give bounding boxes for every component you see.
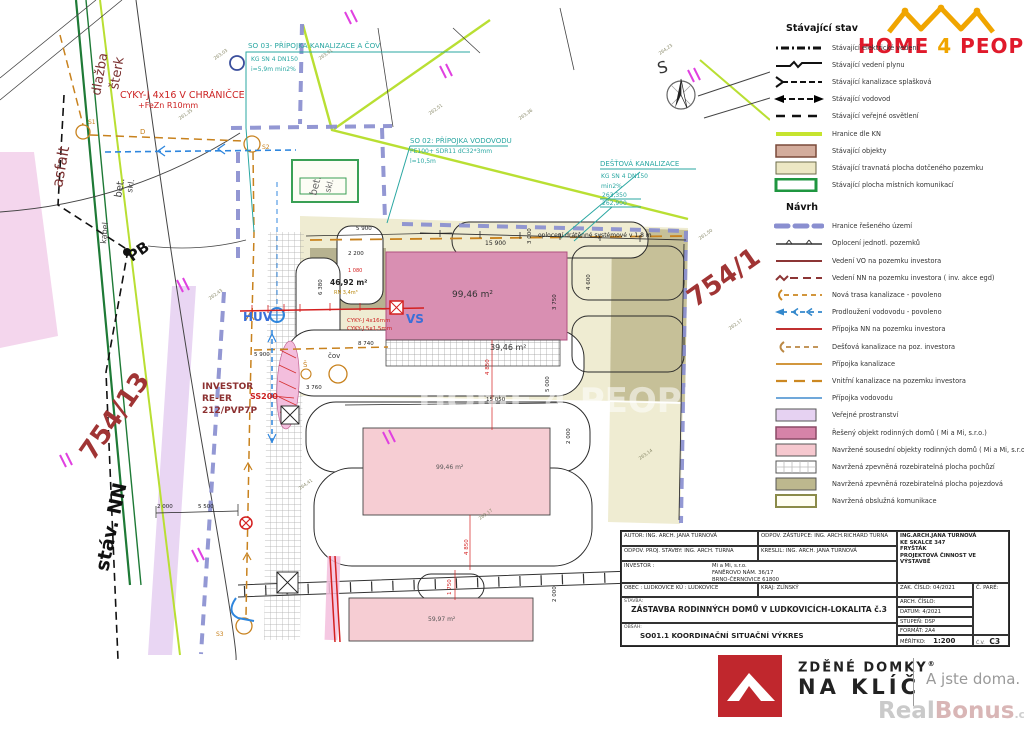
- area-small-label: 59,97 m²: [428, 616, 456, 623]
- tb-investor: INVESTOR : Mi a Mi, s.r.o. FANĚROVO NÁM.…: [621, 561, 897, 583]
- dim-5000: 5 000: [545, 376, 551, 392]
- pb-label: PB: [124, 238, 153, 266]
- legend-symbol-line-water: [774, 92, 824, 106]
- spot-elevation: 263,03: [213, 48, 229, 62]
- legend-item: Přípojka NN na pozemku investora: [770, 321, 1022, 338]
- legend-item-label: Stávající objekty: [832, 147, 886, 155]
- legend-proposal-list: Hranice řešeného územíOplocení jednotl. …: [770, 218, 1022, 510]
- dlazba-label: dlažba: [89, 52, 111, 97]
- dim-5500: 5 500: [198, 504, 214, 510]
- legend-symbol-line-water-conn: [774, 391, 824, 405]
- so03-line2: i=5,9m min2%: [251, 66, 296, 73]
- legend-item-label: Navržené sousední objekty rodinných domů…: [832, 446, 1024, 454]
- dim-1750: 1 750: [447, 579, 453, 595]
- dim-2000: 2 000: [157, 504, 173, 510]
- asfalt-label: asfalt: [48, 145, 73, 189]
- watermark-tld: .cz: [1015, 708, 1024, 721]
- footer-logo: ZDĚNÉ DOMKY® NA KLÍČ A jste doma. RealBo…: [710, 650, 1024, 729]
- legend-item-label: Řešený objekt rodinných domů ( Mi a Mi, …: [832, 429, 987, 437]
- legend-item-label: Hranice řešeného území: [832, 222, 912, 230]
- tb-kreslil: KRESLIL: ING. ARCH. JANA TURNOVÁ: [758, 546, 897, 561]
- tb-kraj: KRAJ: ZLÍNSKÝ: [758, 583, 897, 597]
- legend-item-label: Stávající vedení plynu: [832, 61, 905, 69]
- legend-proposal-title: Návrh: [786, 202, 1022, 213]
- tb-investor-addr1: FANĚROVO NÁM. 36/17: [712, 570, 773, 577]
- vs-label: VS: [406, 312, 424, 326]
- cyky-label-1: CYKY-J 4x16 V CHRÁNIČCE: [120, 89, 245, 101]
- sachta-label: Š: [303, 360, 308, 369]
- watermark-real: Real: [878, 698, 935, 724]
- legend-item-label: Prodloužení vodovodu - povoleno: [832, 308, 942, 316]
- area-neighbor-label: 99,46 m²: [436, 464, 464, 471]
- legend-item: Navržená obslužná komunikace: [770, 493, 1022, 510]
- legend-item: Oplocení jednotl. pozemků: [770, 235, 1022, 252]
- legend-item: Stávající travnatá plocha dotčeného poze…: [770, 159, 1022, 176]
- realbonus-watermark: RealBonus.cz: [878, 698, 1024, 724]
- legend-item-label: Stávající vodovod: [832, 95, 890, 103]
- investor-label-3: 212/PVP7P: [202, 406, 257, 416]
- rain-line1: KG SN 4 DN150: [601, 173, 648, 180]
- title-block: AUTOR: ING. ARCH. JANA TURNOVÁ ODPOV. ZÁ…: [620, 530, 1010, 647]
- so03-line1: KG SN 4 DN150: [251, 56, 298, 63]
- legend-symbol-swatch-neighbor-building: [774, 443, 824, 457]
- d-marker-label: D: [140, 128, 145, 136]
- legend-item-label: Vnitřní kanalizace na pozemku investora: [832, 377, 966, 385]
- legend-symbol-line-rain: [774, 340, 824, 354]
- dim-8740: 8 740: [358, 341, 374, 347]
- legend-item: Vedení NN na pozemku investora ( inv. ak…: [770, 269, 1022, 286]
- legend-item: Stávající veřejné osvětlení: [770, 108, 1022, 125]
- footer-wordmark: ZDĚNÉ DOMKY® NA KLÍČ: [798, 660, 937, 699]
- dim-15900: 15 900: [485, 240, 506, 247]
- legend-symbol-line-fence: [774, 236, 824, 250]
- legend-symbol-line-new-sewer: [774, 288, 824, 302]
- tb-cv-value: C3: [989, 637, 1000, 646]
- spot-elevation: 264,23: [658, 43, 674, 57]
- legend-item: Řešený objekt rodinných domů ( Mi a Mi, …: [770, 424, 1022, 441]
- legend-item: Stávající vodovod: [770, 91, 1022, 108]
- dim-14200: 14 200: [0, 0, 20, 2]
- legend-item-label: Navržená zpevněná rozebiratelná plocha p…: [832, 480, 1003, 488]
- legend-item: Stávající kanalizace splašková: [770, 73, 1022, 90]
- public-space-band: [148, 286, 196, 655]
- s3-label: S3: [216, 631, 224, 638]
- legend-symbol-swatch-drive: [774, 477, 824, 491]
- legend-item: Nová trasa kanalizace - povoleno: [770, 286, 1022, 303]
- legend-symbol-swatch-walk: [774, 460, 824, 474]
- legend-item: Přípojka vodovodu: [770, 390, 1022, 407]
- sewer-node-circle: [230, 56, 244, 70]
- skl-label: skl.: [125, 178, 136, 193]
- watermark-bonus: Bonus: [935, 698, 1015, 724]
- legend-symbol-swatch-grass: [774, 161, 824, 175]
- registered-mark: ®: [928, 660, 937, 668]
- rain-elev2: 262,900: [602, 200, 627, 207]
- legend-item: Hranice dle KN: [770, 125, 1022, 142]
- tb-cv: Č.V. C3: [973, 635, 1009, 646]
- legend-item: Hranice řešeného území: [770, 218, 1022, 235]
- rn-label: RN 3,4m³: [334, 290, 358, 296]
- legend-symbol-swatch-service-road: [774, 494, 824, 508]
- legend-item-label: Stávající kanalizace splašková: [832, 78, 931, 86]
- so02-title: SO 02: PŘÍPOJKA VODOVODU: [410, 136, 512, 145]
- legend-item-label: Vedení NN na pozemku investora ( inv. ak…: [832, 274, 995, 282]
- legend-item-label: Nová trasa kanalizace - povoleno: [832, 291, 942, 299]
- spot-elevation: 261,50: [698, 228, 714, 242]
- tb-stavba-title: ZÁSTAVBA RODINNÝCH DOMŮ V LUDKOVICÍCH-LO…: [624, 605, 894, 614]
- tb-obsah: OBSAH: SO01.1 KOORDINAČNÍ SITUAČNÍ VÝKRE…: [621, 623, 897, 646]
- tb-odpov-zastupce: ODPOV. ZÁSTUPCE: ING. ARCH.RICHARD TURNA: [758, 531, 897, 546]
- footer-tagline: A jste doma.: [926, 670, 1020, 688]
- legend-symbol-line-vo: [774, 254, 824, 268]
- legend-symbol-swatch-main-building: [774, 426, 824, 440]
- dim-2200: 2 200: [348, 251, 364, 257]
- tb-datum: DATUM: 4/2021: [897, 607, 973, 617]
- tb-arch-cislo: ARCH. ČÍSLO:: [897, 597, 973, 607]
- legend-item-label: Oplocení jednotl. pozemků: [832, 239, 920, 247]
- legend-item: Stávající elektrické vedení: [770, 39, 1022, 56]
- legend-symbol-line-gas: [774, 58, 824, 72]
- ss200-label: SS200: [250, 392, 278, 401]
- parcel-label-754-13: 754/13: [74, 367, 156, 466]
- so02-line2: l=10,5m: [410, 158, 436, 165]
- legend-symbol-swatch-roads: [774, 178, 824, 192]
- dim-3750: 3 750: [552, 294, 558, 310]
- paved-terrace: [386, 340, 560, 366]
- legend-item-label: Stávající elektrické vedení: [832, 44, 918, 52]
- legend-symbol-swatch-existing-building: [774, 144, 824, 158]
- investor-label-2: RE-ER: [202, 394, 232, 404]
- tb-firm1: ING.ARCH.JANA TURNOVÁ: [900, 533, 1006, 540]
- tb-pare: Č. PARÉ:: [973, 583, 1009, 635]
- dim-15050: 15 050: [486, 397, 506, 403]
- tb-investor-name: Mi a Mi, s.r.o.: [712, 563, 747, 570]
- legend-item: Navržené sousední objekty rodinných domů…: [770, 441, 1022, 458]
- tb-cv-label: Č.V.: [976, 641, 985, 646]
- s2-label: S2: [262, 144, 270, 151]
- legend-item: Prodloužení vodovodu - povoleno: [770, 304, 1022, 321]
- legend-item: Stávající plocha místních komunikací: [770, 177, 1022, 194]
- tb-meritko-value: 1:200: [933, 637, 955, 645]
- legend-item-label: Přípojka NN na pozemku investora: [832, 325, 945, 333]
- roof-logo-icon: [718, 655, 782, 717]
- dim-2000b: 2 000: [566, 428, 572, 444]
- legend-item-label: Přípojka vodovodu: [832, 394, 893, 402]
- dim-5900: 5 900: [356, 226, 372, 232]
- tb-firm3: FRYŠTÁK: [900, 546, 1006, 553]
- dim-4600: 4 600: [586, 274, 592, 290]
- spot-elevation: 262,51: [428, 103, 444, 117]
- dim-3000: 3 000: [527, 228, 533, 244]
- area-paved-label: 39,46 m²: [490, 343, 526, 352]
- tb-format: FORMÁT: 2A4: [897, 626, 973, 635]
- dim-1080: 1 080: [348, 268, 362, 274]
- legend-symbol-line-nn-conn: [774, 322, 824, 336]
- kabel-label: kabel: [99, 222, 110, 244]
- legend-item: Veřejné prostranství: [770, 407, 1022, 424]
- dim-2000c: 2 000: [552, 586, 558, 602]
- spot-elevation: 262,17: [728, 318, 744, 332]
- legend-existing-list: Stávající elektrické vedeníStávající ved…: [770, 39, 1022, 194]
- legend-item-label: Navržená zpevněná rozebiratelná plocha p…: [832, 463, 995, 471]
- dim-3760: 3 760: [306, 385, 322, 391]
- tb-autor: AUTOR: ING. ARCH. JANA TURNOVÁ: [621, 531, 758, 546]
- area-garage-label: 46,92 m²: [330, 278, 367, 287]
- tb-odpov-proj: ODPOV. PROJ. STAVBY: ING. ARCH. TURNA: [621, 546, 758, 561]
- legend-existing-title: Stávající stav: [786, 23, 1022, 34]
- north-letter: S: [655, 57, 670, 78]
- tb-meritko-label: MĚŘÍTKO:: [900, 639, 925, 645]
- legend-item: Přípojka kanalizace: [770, 355, 1022, 372]
- north-arrow: [667, 79, 695, 109]
- cyky-label-4: CYKY-J 5x1,5mm: [347, 326, 392, 332]
- dim-4850: 4 850: [485, 359, 491, 375]
- investor-label-1: INVESTOR: [202, 382, 253, 392]
- legend-symbol-line-sewer-conn: [774, 357, 824, 371]
- legend-item: Stávající vedení plynu: [770, 56, 1022, 73]
- legend-item: Vnitřní kanalizace na pozemku investora: [770, 372, 1022, 389]
- legend-item-label: Hranice dle KN: [832, 130, 881, 138]
- rain-elev1: 263,350: [602, 192, 627, 199]
- so03-title: SO 03- PŘÍPOJKA KANALIZACE A ČOV: [248, 41, 380, 50]
- legend-item: Navržená zpevněná rozebiratelná plocha p…: [770, 476, 1022, 493]
- legend-item: Dešťová kanalizace na poz. investora: [770, 338, 1022, 355]
- tb-firm: ING.ARCH.JANA TURNOVÁ KE SKALCE 347 FRYŠ…: [897, 531, 1009, 583]
- parcel-label-754-1: 754/1: [682, 242, 766, 314]
- legend-item-label: Stávající plocha místních komunikací: [832, 181, 954, 189]
- legend-item-label: Stávající veřejné osvětlení: [832, 112, 919, 120]
- s1-label: S1: [88, 119, 96, 126]
- neighbor-house-footprint: [363, 428, 550, 515]
- footer-line2: NA KLÍČ: [798, 675, 937, 699]
- legend-symbol-line-boundary: [774, 219, 824, 233]
- tb-stupen: STUPEŇ: DSP: [897, 617, 973, 626]
- fence-label: oplocení drátěnné systémové v 1,8 m: [538, 232, 652, 239]
- huv-label: HUV: [243, 310, 273, 324]
- cyky-label-3: CYKY-J 4x16mm: [347, 318, 390, 324]
- center-watermark: HOME 4 PEOPLE: [418, 381, 727, 421]
- legend-item: Navržená zpevněná rozebiratelná plocha p…: [770, 458, 1022, 475]
- legend-symbol-line-nn: [774, 271, 824, 285]
- tb-investor-label: INVESTOR :: [624, 563, 654, 569]
- legend-item: Stávající objekty: [770, 142, 1022, 159]
- legend-item-label: Stávající travnatá plocha dotčeného poze…: [832, 164, 983, 172]
- tb-meritko: MĚŘÍTKO: 1:200: [897, 635, 973, 646]
- tb-stavba: STAVBA: ZÁSTAVBA RODINNÝCH DOMŮ V LUDKOV…: [621, 597, 897, 623]
- tb-firm4: PROJEKTOVÁ ČINNOST VE VÝSTAVBĚ: [900, 553, 1006, 566]
- dim-4850b: 4 850: [464, 539, 470, 555]
- legend-symbol-line-kn: [774, 127, 824, 141]
- legend-symbol-line-electric: [774, 41, 824, 55]
- tb-obec: OBEC : LUDKOVICE KÚ : LUDKOVICE: [621, 583, 758, 597]
- legend-panel: Stávající stav Stávající elektrické vede…: [770, 20, 1022, 510]
- dim-6380: 6 380: [318, 279, 324, 295]
- legend-symbol-swatch-public: [774, 408, 824, 422]
- cov-label: čov: [328, 352, 340, 360]
- legend-symbol-line-inner-sewer: [774, 374, 824, 388]
- teal-leaders: [246, 52, 696, 241]
- spot-elevation: 263,36: [518, 108, 534, 122]
- tb-obsah-title: SO01.1 KOORDINAČNÍ SITUAČNÍ VÝKRES: [640, 631, 894, 640]
- legend-item-label: Veřejné prostranství: [832, 411, 898, 419]
- legend-item-label: Dešťová kanalizace na poz. investora: [832, 343, 955, 351]
- rain-title: DEŠŤOVÁ KANALIZACE: [600, 159, 679, 168]
- legend-item-label: Vedení VO na pozemku investora: [832, 257, 941, 265]
- rain-line2: min2%: [601, 183, 622, 190]
- legend-item: Vedení VO na pozemku investora: [770, 252, 1022, 269]
- footer-line1: ZDĚNÉ DOMKY: [798, 660, 928, 675]
- so02-line1: PE100+ SDR11 dC32*3mm: [410, 148, 492, 155]
- legend-symbol-line-water-ext: [774, 305, 824, 319]
- legend-symbol-line-sewer: [774, 75, 824, 89]
- area-main-label: 99,46 m²: [452, 290, 493, 300]
- legend-item-label: Navržená obslužná komunikace: [832, 497, 937, 505]
- legend-symbol-line-lighting: [774, 109, 824, 123]
- legend-item-label: Přípojka kanalizace: [832, 360, 895, 368]
- tb-zak-cislo: ZAK. ČÍSLO: 04/2021: [897, 583, 973, 597]
- dim-5900b: 5 900: [254, 352, 270, 358]
